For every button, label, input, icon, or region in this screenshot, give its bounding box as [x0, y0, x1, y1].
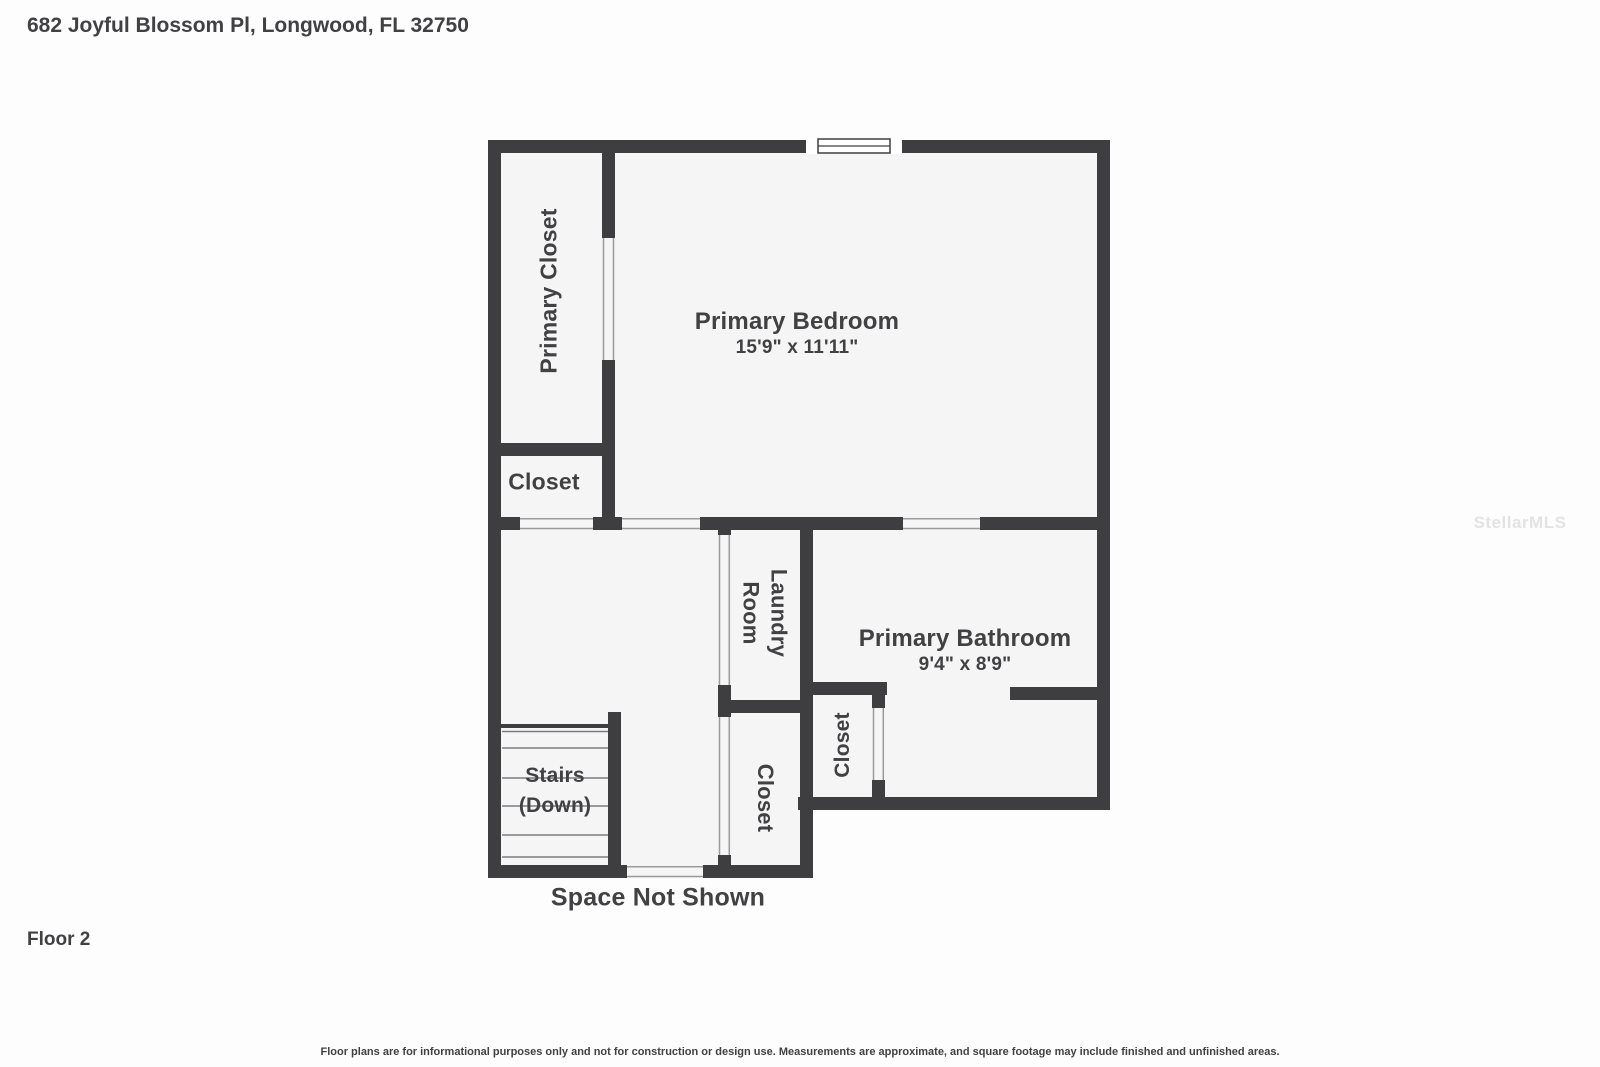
floorplan-page: 682 Joyful Blossom Pl, Longwood, FL 3275…: [0, 0, 1600, 1067]
room-label-closet-mid: Closet: [752, 764, 778, 832]
disclaimer-text: Floor plans are for informational purpos…: [320, 1046, 1279, 1058]
room-label-closet-top: Closet: [508, 469, 580, 496]
room-dims-primary-bedroom: 15'9" x 11'11": [736, 337, 859, 359]
room-dims-primary-bathroom: 9'4" x 8'9": [919, 654, 1012, 676]
window: [806, 139, 902, 154]
room-label-laundry: Laundry Room: [738, 561, 793, 665]
space-not-shown-label: Space Not Shown: [551, 884, 765, 913]
mls-watermark: StellarMLS: [1474, 513, 1567, 533]
floor-label: Floor 2: [27, 929, 90, 951]
page-title: 682 Joyful Blossom Pl, Longwood, FL 3275…: [27, 14, 469, 38]
room-label-closet-bathroom: Closet: [831, 712, 855, 777]
room-label-primary-bedroom: Primary Bedroom: [695, 308, 899, 336]
room-label-primary-closet: Primary Closet: [536, 208, 563, 373]
room-label-primary-bathroom: Primary Bathroom: [859, 625, 1072, 653]
room-label-stairs: Stairs (Down): [497, 761, 613, 821]
floorplan-drawing: [0, 0, 1600, 1067]
